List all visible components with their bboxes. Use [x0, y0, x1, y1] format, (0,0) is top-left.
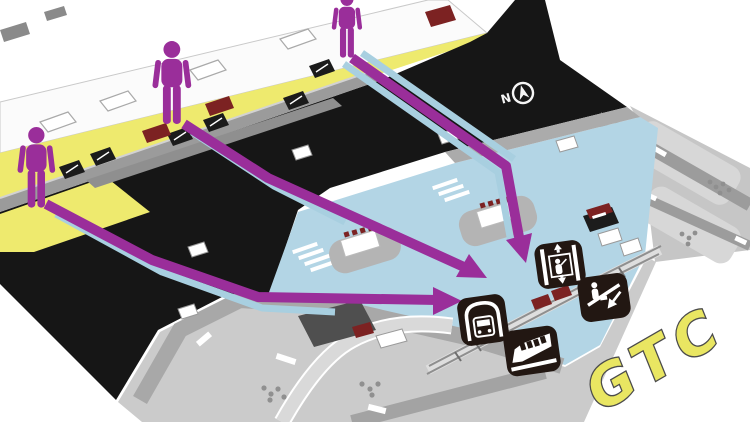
subway-icon: [456, 293, 510, 347]
monorail-icon: [502, 324, 562, 377]
escalator-down-icon: [576, 272, 632, 324]
terminal-buildings: [0, 6, 67, 42]
gtc-wayfinding-map: GTC N: [0, 0, 750, 422]
map-canvas: GTC N: [0, 0, 750, 422]
